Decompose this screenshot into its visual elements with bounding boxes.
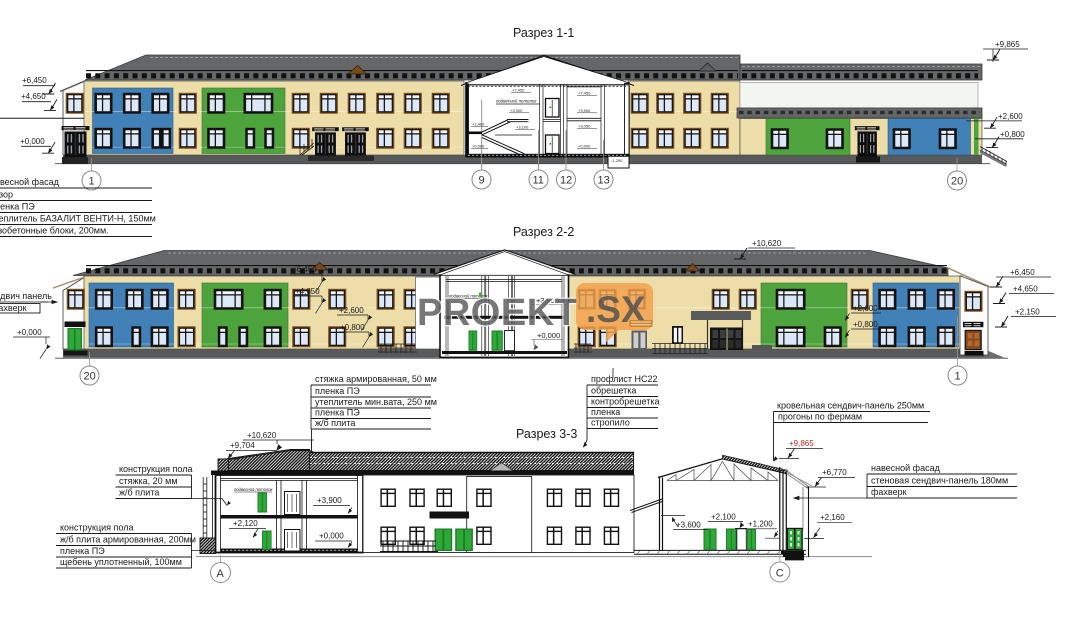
svg-text:утеплитель БАЗАЛИТ ВЕНТИ-Н, 15: утеплитель БАЗАЛИТ ВЕНТИ-Н, 150мм [0, 214, 156, 224]
svg-text:фахверк: фахверк [0, 303, 27, 313]
svg-text:+0,800: +0,800 [1000, 130, 1025, 139]
svg-text:фахверк: фахверк [871, 487, 907, 497]
svg-text:+2,600: +2,600 [339, 306, 364, 315]
svg-text:пленка ПЭ: пленка ПЭ [315, 386, 360, 396]
svg-text:зазор: зазор [0, 190, 13, 200]
svg-text:навесной фасад: навесной фасад [871, 463, 941, 473]
svg-text:+3,900: +3,900 [510, 108, 523, 113]
svg-text:+3,900: +3,900 [317, 496, 342, 505]
svg-text:+2,400: +2,400 [472, 122, 485, 127]
svg-text:пленка ПЭ: пленка ПЭ [60, 546, 105, 556]
svg-text:+0,800: +0,800 [340, 323, 365, 332]
svg-text:сэндвич панель: сэндвич панель [0, 291, 52, 301]
svg-text:+3,900: +3,900 [578, 108, 591, 113]
svg-text:конструкция пола: конструкция пола [60, 523, 133, 533]
svg-text:+6,770: +6,770 [822, 468, 847, 477]
svg-text:ж/б плита армированная, 200мм: ж/б плита армированная, 200мм [60, 535, 196, 545]
svg-text:12: 12 [560, 175, 572, 187]
svg-text:ж/б плита: ж/б плита [315, 418, 355, 428]
svg-text:+0,000: +0,000 [578, 144, 591, 149]
svg-text:обрешетка: обрешетка [591, 386, 636, 396]
svg-text:+9,865: +9,865 [789, 439, 814, 448]
svg-text:+2,100: +2,100 [711, 513, 736, 522]
svg-text:-1,200: -1,200 [611, 158, 623, 163]
svg-text:пленка ПЭ: пленка ПЭ [0, 202, 35, 212]
svg-text:+7,450: +7,450 [578, 91, 591, 96]
svg-text:С: С [776, 568, 784, 580]
svg-text:стеновая сендвич-панель 180мм: стеновая сендвич-панель 180мм [871, 476, 1008, 486]
svg-text:+10,620: +10,620 [752, 239, 782, 248]
svg-text:утеплитель мин.вата, 250 мм: утеплитель мин.вата, 250 мм [315, 397, 437, 407]
svg-text:Разрез 1-1: Разрез 1-1 [513, 26, 574, 40]
svg-text:прогоны по фермам: прогоны по фермам [778, 412, 862, 422]
svg-text:Разрез 2-2: Разрез 2-2 [513, 225, 574, 239]
svg-text:стяжка, 20 мм: стяжка, 20 мм [119, 476, 178, 486]
svg-text:+0,000: +0,000 [20, 137, 45, 146]
svg-text:+0,000: +0,000 [17, 328, 42, 337]
svg-text:конструкция пола: конструкция пола [119, 464, 192, 474]
svg-text:+6,450: +6,450 [1010, 268, 1035, 277]
svg-text:А: А [217, 568, 225, 580]
svg-text:кровельная сендвич-панель 250м: кровельная сендвич-панель 250мм [777, 401, 924, 411]
svg-text:+0,800: +0,800 [853, 320, 878, 329]
svg-text:навесной фасад: навесной фасад [0, 177, 60, 187]
svg-text:+4,650: +4,650 [295, 287, 320, 296]
svg-text:+3,600: +3,600 [676, 521, 701, 530]
svg-text:стропило: стропило [591, 418, 630, 428]
svg-text:1: 1 [955, 371, 961, 383]
svg-text:+0,000: +0,000 [319, 532, 344, 541]
svg-text:+9,865: +9,865 [995, 40, 1020, 49]
svg-text:Разрез 3-3: Разрез 3-3 [516, 427, 577, 441]
svg-text:+7,450: +7,450 [512, 88, 525, 93]
svg-text:+2,600: +2,600 [853, 304, 878, 313]
svg-text:подвесной потолок: подвесной потолок [234, 487, 274, 492]
svg-text:ж/б плита: ж/б плита [119, 488, 159, 498]
svg-text:+2,160: +2,160 [820, 513, 845, 522]
svg-text:13: 13 [598, 175, 610, 187]
svg-text:+6,450: +6,450 [292, 265, 317, 274]
svg-text:газобетонные блоки, 200мм.: газобетонные блоки, 200мм. [0, 226, 109, 236]
svg-text:1: 1 [89, 176, 95, 188]
svg-text:стяжка армированная, 50 мм: стяжка армированная, 50 мм [315, 374, 437, 384]
svg-text:20: 20 [951, 176, 963, 188]
svg-text:профлист НС22: профлист НС22 [591, 374, 658, 384]
svg-text:пленка ПЭ: пленка ПЭ [315, 408, 360, 418]
svg-text:+3,100: +3,100 [516, 125, 529, 130]
svg-text:+4,650: +4,650 [1013, 285, 1038, 294]
svg-text:11: 11 [533, 175, 544, 187]
svg-text:PROEKT: PROEKT [417, 292, 578, 334]
svg-text:+6,450: +6,450 [22, 76, 47, 85]
svg-text:+2,150: +2,150 [1015, 308, 1040, 317]
svg-text:+3,050: +3,050 [578, 124, 591, 129]
svg-text:+4,650: +4,650 [21, 92, 46, 101]
svg-text:9: 9 [479, 175, 485, 187]
svg-text:20: 20 [84, 371, 96, 383]
svg-text:+10,620: +10,620 [247, 431, 277, 440]
svg-text:+2,600: +2,600 [998, 112, 1023, 121]
svg-text:+9,704: +9,704 [230, 441, 255, 450]
svg-text:+2,120: +2,120 [233, 519, 258, 528]
svg-text:+0,000: +0,000 [472, 144, 485, 149]
svg-text:подвесной потолок: подвесной потолок [496, 99, 537, 104]
svg-text:+1,200: +1,200 [748, 520, 773, 529]
svg-text:щебень уплотненный, 100мм: щебень уплотненный, 100мм [60, 557, 182, 567]
svg-text:контробрешетка: контробрешетка [591, 397, 660, 407]
svg-text:пленка: пленка [591, 407, 620, 417]
